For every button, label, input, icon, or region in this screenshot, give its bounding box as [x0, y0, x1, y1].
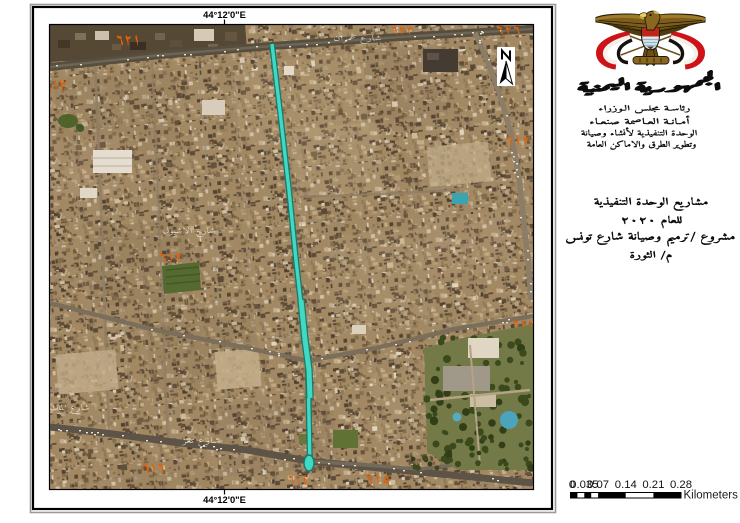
- svg-text:0.07: 0.07: [587, 479, 609, 491]
- svg-text:44°12'0"E: 44°12'0"E: [203, 9, 246, 20]
- svg-text:44°12'0"E: 44°12'0"E: [203, 494, 246, 505]
- svg-text:0.14: 0.14: [615, 479, 637, 491]
- svg-text:0.21: 0.21: [642, 479, 664, 491]
- svg-text:Kilometers: Kilometers: [684, 490, 739, 502]
